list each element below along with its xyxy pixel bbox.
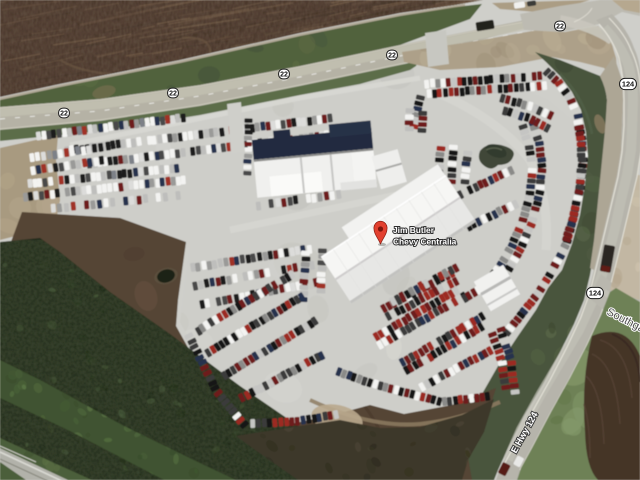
- svg-text:22: 22: [169, 91, 177, 98]
- svg-text:22: 22: [280, 72, 288, 79]
- svg-text:22: 22: [388, 53, 396, 60]
- svg-text:124: 124: [622, 80, 635, 89]
- svg-text:22: 22: [60, 111, 68, 118]
- svg-text:Chevy Centralia: Chevy Centralia: [393, 237, 457, 247]
- svg-text:22: 22: [556, 24, 564, 31]
- svg-text:124: 124: [589, 289, 602, 298]
- svg-text:Jim Butler: Jim Butler: [393, 225, 435, 235]
